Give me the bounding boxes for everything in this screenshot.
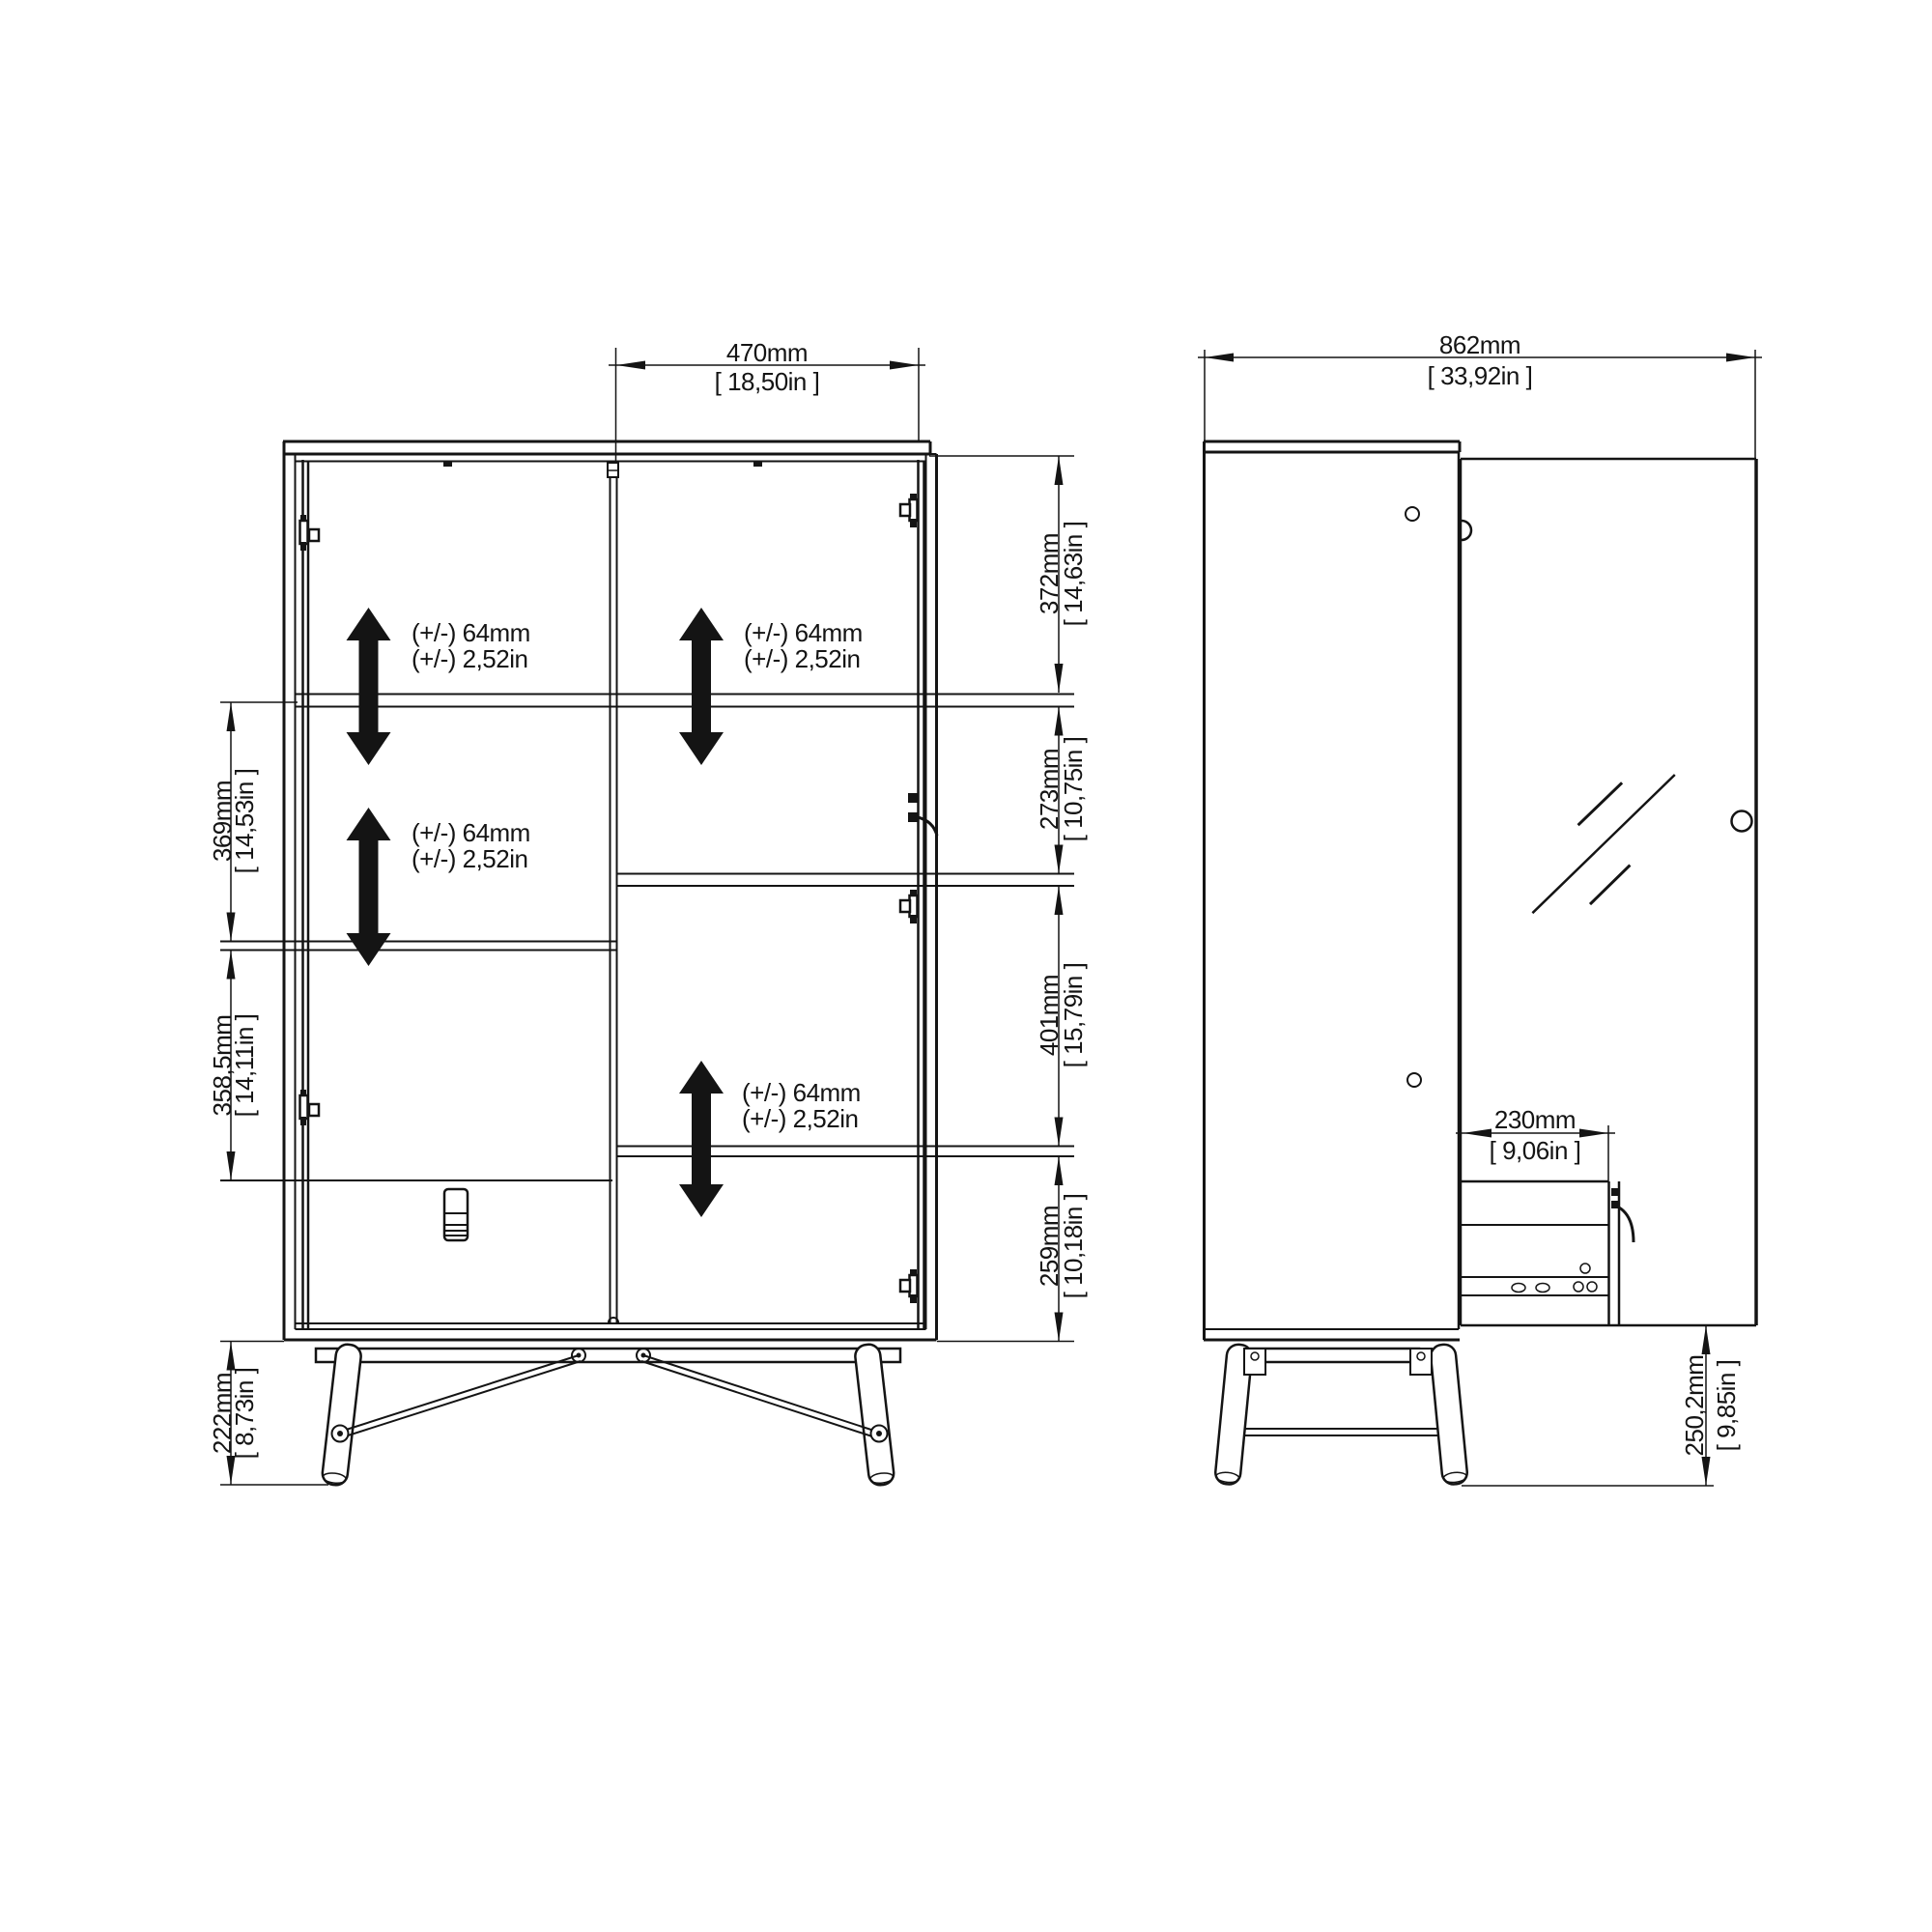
svg-text:[ 14,53in ]: [ 14,53in ]: [230, 769, 259, 874]
svg-text:(+/-) 64mm(+/-) 2,52in: (+/-) 64mm(+/-) 2,52in: [742, 1078, 861, 1133]
svg-text:[ 9,85in ]: [ 9,85in ]: [1712, 1360, 1741, 1452]
svg-text:(+/-) 64mm(+/-) 2,52in: (+/-) 64mm(+/-) 2,52in: [412, 618, 530, 673]
svg-text:862mm: 862mm: [1439, 330, 1520, 359]
svg-text:[ 10,75in ]: [ 10,75in ]: [1059, 737, 1088, 842]
svg-text:[ 14,11in ]: [ 14,11in ]: [230, 1014, 259, 1118]
svg-text:[ 9,06in ]: [ 9,06in ]: [1490, 1136, 1581, 1165]
svg-text:(+/-) 64mm(+/-) 2,52in: (+/-) 64mm(+/-) 2,52in: [412, 818, 530, 873]
svg-text:[ 10,18in ]: [ 10,18in ]: [1059, 1194, 1088, 1299]
svg-text:470mm: 470mm: [726, 338, 808, 367]
svg-text:250,2mm: 250,2mm: [1680, 1355, 1709, 1457]
svg-text:[ 8,73in ]: [ 8,73in ]: [230, 1368, 259, 1460]
svg-text:[ 33,92in ]: [ 33,92in ]: [1428, 361, 1533, 390]
svg-text:230mm: 230mm: [1494, 1105, 1576, 1134]
svg-text:[ 14,63in ]: [ 14,63in ]: [1059, 522, 1088, 627]
svg-text:(+/-) 64mm(+/-) 2,52in: (+/-) 64mm(+/-) 2,52in: [744, 618, 863, 673]
svg-text:[ 18,50in ]: [ 18,50in ]: [715, 367, 820, 396]
svg-text:[ 15,79in ]: [ 15,79in ]: [1059, 963, 1088, 1068]
